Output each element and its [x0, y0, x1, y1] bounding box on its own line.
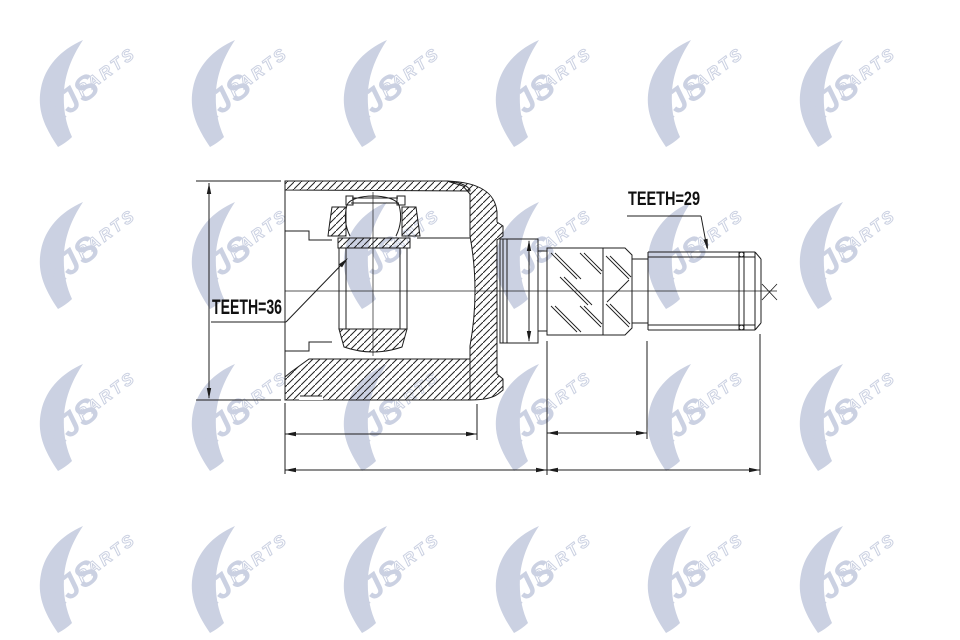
inner-race [338, 192, 410, 356]
ball-and-cage [328, 196, 420, 236]
housing-bottom-wall [285, 359, 470, 400]
spline-marks [551, 253, 631, 332]
inner-race-flange [338, 238, 410, 248]
teeth-36-label: TEETH=36 [212, 296, 282, 319]
spline-section [547, 248, 632, 335]
teeth-29-label: TEETH=29 [628, 189, 700, 210]
dimension-housing-width [285, 432, 477, 436]
housing-section [285, 181, 503, 400]
dimension-overall-chain [285, 468, 760, 472]
cage-right [402, 207, 420, 236]
dimension-spline-section [547, 431, 647, 435]
centerline [285, 284, 777, 300]
cage-left [328, 207, 346, 236]
dimension-housing-diameter [196, 181, 281, 400]
annotations: TEETH=36 TEETH=29 [211, 189, 708, 322]
housing-top-wall [285, 181, 470, 191]
cv-joint-drawing: TEETH=36 TEETH=29 [0, 0, 960, 640]
catalog-product-image: AJS PARTS [0, 0, 960, 640]
teeth-29-leader [627, 216, 708, 250]
centerline-end-mark [762, 284, 777, 300]
